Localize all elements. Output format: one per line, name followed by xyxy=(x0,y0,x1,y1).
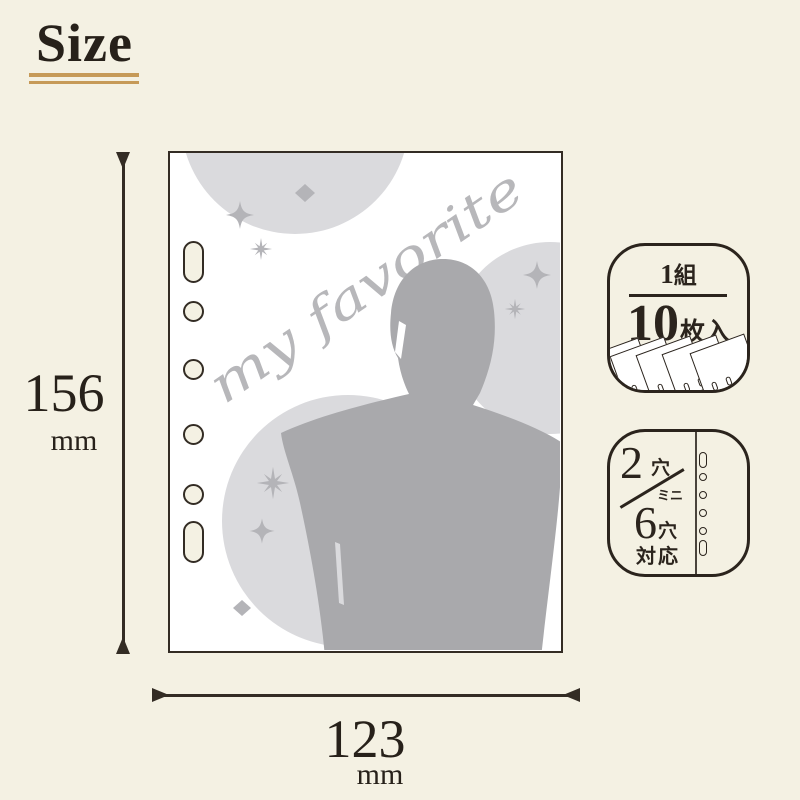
height-dimension-line xyxy=(122,152,125,654)
sheet-stack-icon xyxy=(607,332,750,393)
mini-sheet-hole xyxy=(683,382,691,392)
set-unit: 組 xyxy=(674,263,697,289)
dimension-arrowhead-bottom xyxy=(116,637,130,654)
title-underline-thin xyxy=(29,81,139,84)
sheet-count-badge: 1組 10 枚入 xyxy=(607,243,750,393)
height-value: 156 xyxy=(18,366,110,420)
binder-hole-round xyxy=(183,424,204,445)
mini-label: ミニ xyxy=(657,490,683,503)
two-hole-unit: 穴 xyxy=(651,459,670,478)
hole-round-icon xyxy=(699,509,707,517)
mini-sheet-hole xyxy=(725,376,733,386)
mini-sheet-hole xyxy=(607,385,613,393)
binder-hole-slot xyxy=(183,241,204,283)
binder-hole-round xyxy=(183,484,204,505)
width-unit: mm xyxy=(335,760,425,790)
mini-sheet-hole xyxy=(631,384,639,393)
two-hole-number: 2 xyxy=(620,440,643,486)
hole-slot-icon xyxy=(699,540,707,556)
size-infographic: Size xyxy=(0,0,800,800)
dimension-arrowhead-right xyxy=(563,688,580,702)
mini-sheet-hole xyxy=(657,383,665,393)
hole-round-icon xyxy=(699,473,707,481)
binder-hole-round xyxy=(183,301,204,322)
hole-slot-icon xyxy=(699,452,707,468)
title-underline-thick xyxy=(29,73,139,77)
width-dimension-line xyxy=(152,694,580,697)
page-title: Size xyxy=(36,12,133,74)
hole-round-icon xyxy=(699,527,707,535)
dimension-arrowhead-top xyxy=(116,152,130,169)
support-label: 対応 xyxy=(630,546,686,566)
binder-hole-round xyxy=(183,359,204,380)
diamond-icon xyxy=(233,600,251,616)
height-unit: mm xyxy=(40,426,108,456)
badge-divider-line xyxy=(695,432,697,574)
decor-circle-top xyxy=(181,153,409,234)
hole-round-icon xyxy=(699,491,707,499)
binder-hole-slot xyxy=(183,521,204,563)
photo-sleeve-illustration: my favorite xyxy=(168,151,563,653)
six-hole-number: 6 xyxy=(634,500,657,546)
mini-sheet-hole xyxy=(711,381,719,391)
set-number: 1 xyxy=(660,259,674,289)
six-hole-unit: 穴 xyxy=(658,522,677,541)
eight-point-burst-icon xyxy=(249,237,274,262)
set-label: 1組 xyxy=(610,256,747,290)
dimension-arrowhead-left xyxy=(152,688,169,702)
sleeve-artwork: my favorite xyxy=(170,153,560,650)
hole-compat-badge: 2 穴 ミニ 6 穴 対応 xyxy=(607,429,750,577)
